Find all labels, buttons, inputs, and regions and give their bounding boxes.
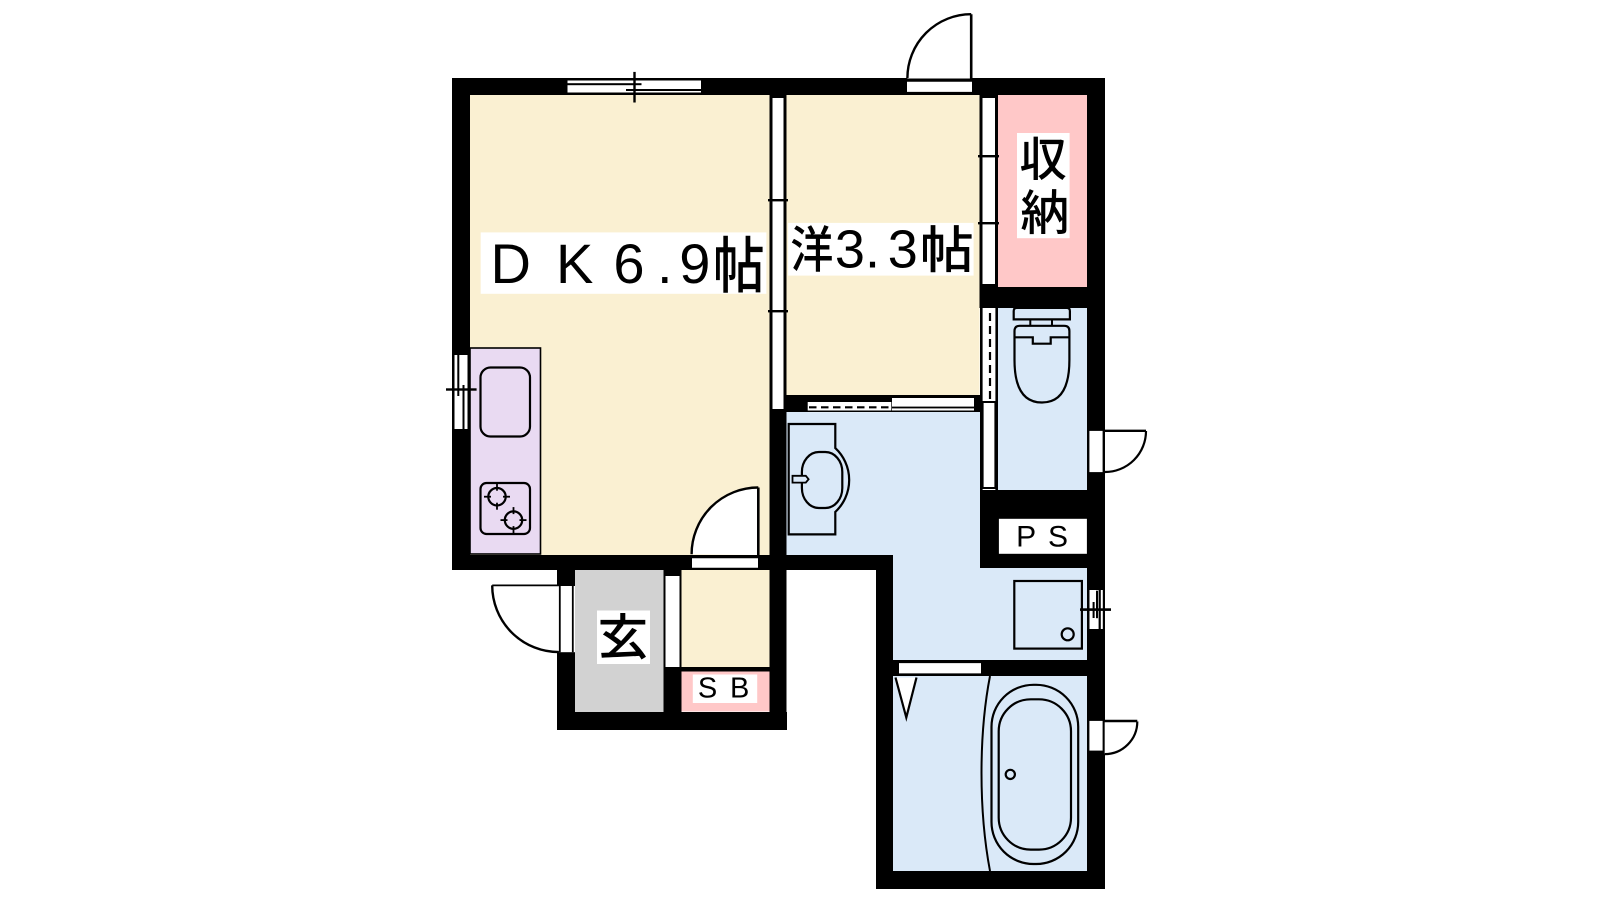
svg-text:3: 3: [835, 220, 865, 280]
svg-text:3: 3: [888, 220, 918, 280]
svg-text:K: K: [556, 232, 593, 295]
svg-text:S: S: [1048, 521, 1068, 554]
svg-text:.: .: [865, 220, 880, 280]
svg-text:D: D: [490, 232, 530, 295]
svg-text:.: .: [657, 232, 673, 295]
svg-text:B: B: [730, 673, 749, 705]
svg-text:P: P: [1016, 521, 1036, 554]
svg-text:S: S: [698, 673, 717, 705]
svg-text:9: 9: [679, 232, 710, 295]
svg-text:6: 6: [613, 232, 644, 295]
